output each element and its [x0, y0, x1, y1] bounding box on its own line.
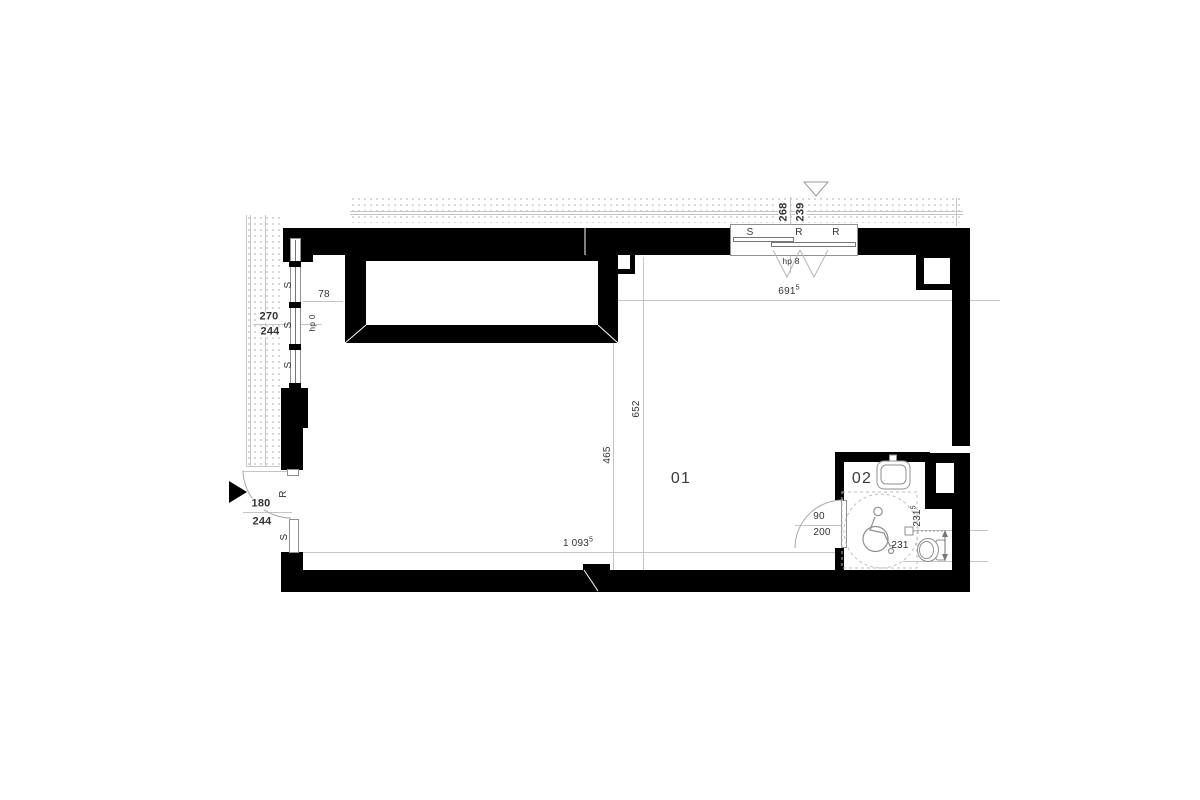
entrance-leaf-label: R	[279, 490, 289, 497]
top-window-sill: hp 8	[782, 257, 799, 266]
bath-door-width: 90	[813, 512, 825, 522]
entrance-width: 180	[251, 499, 272, 510]
toilet-icon	[918, 539, 946, 562]
north-marker-icon	[804, 182, 828, 196]
left-window-height: 244	[260, 327, 281, 338]
wheelchair-icon	[863, 507, 895, 553]
top-window-dim-right: 239	[796, 202, 807, 223]
left-window-width: 270	[259, 312, 280, 323]
top-window-pane-1: S	[747, 228, 754, 238]
dim-room-depth-lower: 465	[603, 446, 613, 463]
top-window-pane-3: R	[832, 228, 839, 238]
dim-bottom-width: 1 0935	[563, 539, 593, 549]
core-joint-right	[598, 325, 618, 343]
left-window-pane-2: S	[284, 322, 294, 329]
core-joint-left	[345, 325, 366, 343]
left-window-sill: hp 0	[308, 314, 317, 331]
entrance-panel-label: S	[280, 534, 290, 541]
left-window-pane-3: S	[284, 362, 294, 369]
dim-wc-front: 231	[891, 541, 908, 551]
bath-door-height: 200	[813, 528, 830, 538]
dim-room-width-value: 691	[778, 286, 795, 297]
room-label-main: 01	[671, 471, 691, 487]
dim-bottom-width-sup: 5	[589, 537, 593, 544]
dim-wc-side: 2315	[913, 505, 923, 526]
dim-bottom-width-value: 1 093	[563, 538, 589, 549]
entrance-height: 244	[252, 517, 273, 528]
top-window-pane-2: R	[795, 228, 802, 238]
window-opening-mark-2	[800, 250, 828, 277]
dim-wc-side-value: 231	[912, 509, 923, 526]
dim-room-depth: 652	[632, 400, 642, 417]
dim-wc-side-sup: 5	[911, 505, 918, 509]
dim-room-width-sup: 5	[796, 285, 800, 292]
left-window-offset: 78	[318, 290, 330, 300]
bathroom-door-swing	[795, 500, 843, 548]
room-label-bathroom: 02	[852, 471, 872, 487]
top-window-dim-left: 268	[779, 202, 790, 223]
floor-plan-canvas: 270 244 78 hp 0 S S S 180 244 R S S R R …	[0, 0, 1200, 800]
sink-icon	[877, 455, 910, 489]
wall-joint-bottom	[584, 570, 598, 591]
left-window-pane-1: S	[284, 282, 294, 289]
dim-room-width: 6915	[778, 287, 799, 297]
drawing-overlay	[0, 0, 1200, 800]
